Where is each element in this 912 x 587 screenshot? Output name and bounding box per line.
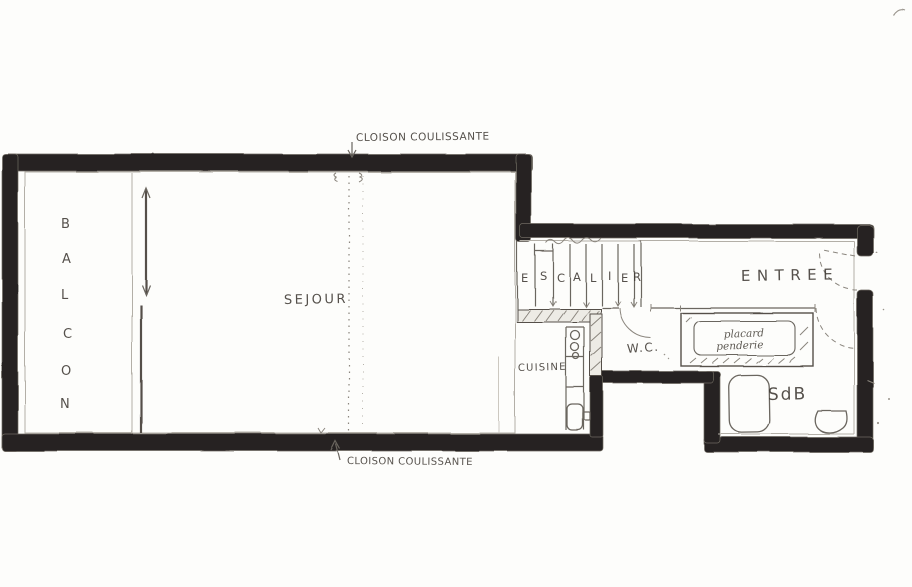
entrance-door-leaf	[820, 249, 855, 256]
wall-kitchen-right-lower	[590, 376, 603, 437]
sejour-inner-outline	[25, 172, 515, 433]
bathroom-sink-icon	[815, 411, 847, 433]
balcon-label: B A L C O N	[60, 217, 72, 412]
wall-main-bottom	[2, 434, 603, 451]
sdb-label: SdB	[768, 384, 808, 405]
pencil-squiggle-mark	[359, 173, 362, 182]
sejour-label: SEJOUR	[284, 292, 348, 308]
walls	[2, 154, 873, 452]
pencil-tick-mark	[318, 428, 325, 433]
wall-main-left	[2, 154, 18, 451]
svg-text:A: A	[62, 252, 71, 267]
svg-text:A: A	[573, 270, 581, 284]
hall-door-swing-arc	[816, 308, 857, 348]
svg-text:C: C	[63, 327, 72, 342]
cuisine-label: CUISINE	[518, 362, 567, 374]
kitchen-sink-icon	[567, 404, 583, 430]
entree-label: ENTREE	[741, 265, 840, 285]
bathtub-icon	[729, 375, 770, 433]
wall-escalier-bottom-hatched	[517, 309, 601, 322]
svg-text:B: B	[61, 217, 70, 232]
floor-plan-svg: CLOISON COULISSANTE CLOISON COULISSANTE …	[0, 0, 912, 587]
svg-text:S: S	[540, 269, 547, 283]
wall-main-top	[3, 154, 532, 171]
stair-scribble	[546, 238, 601, 244]
svg-text:E: E	[521, 271, 528, 285]
hob-burner-icon	[571, 331, 580, 340]
stair-bottom-ticks	[550, 301, 637, 307]
svg-text:O: O	[61, 364, 71, 379]
pencil-squiggle-mark	[334, 173, 337, 181]
wall-wing-right-below-door	[857, 290, 873, 451]
svg-text:L: L	[590, 271, 597, 285]
placard-penderie-label: placard penderie	[716, 327, 764, 353]
wall-wing-bottom	[704, 437, 873, 452]
wall-kitchen-right-upper-hatched	[590, 314, 602, 376]
svg-text:N: N	[60, 397, 70, 412]
wc-label: W.C.	[627, 340, 660, 356]
cloison-coulissante-bottom-label: CLOISON COULISSANTE	[347, 456, 473, 468]
hob-burner-icon	[571, 343, 579, 351]
cloison-coulissante-top-label: CLOISON COULISSANTE	[356, 131, 490, 144]
svg-text:C: C	[557, 271, 565, 285]
svg-text:I: I	[608, 269, 611, 283]
hob-burner-icon	[573, 353, 579, 359]
wall-wc-bottom	[598, 371, 713, 383]
floor-plan-sketch: CLOISON COULISSANTE CLOISON COULISSANTE …	[0, 0, 912, 587]
svg-text:R: R	[633, 270, 641, 284]
svg-text:E: E	[621, 271, 628, 285]
kitchen-counter	[566, 327, 590, 430]
svg-text:penderie: penderie	[716, 339, 764, 353]
wall-wing-top	[520, 224, 873, 238]
svg-text:L: L	[61, 288, 69, 303]
wall-wing-right-above-door	[857, 225, 873, 256]
labels: CLOISON COULISSANTE CLOISON COULISSANTE …	[60, 131, 839, 468]
wc-door-swing-arc	[620, 308, 651, 338]
escalier-label: E S C A L I E R	[521, 269, 641, 285]
